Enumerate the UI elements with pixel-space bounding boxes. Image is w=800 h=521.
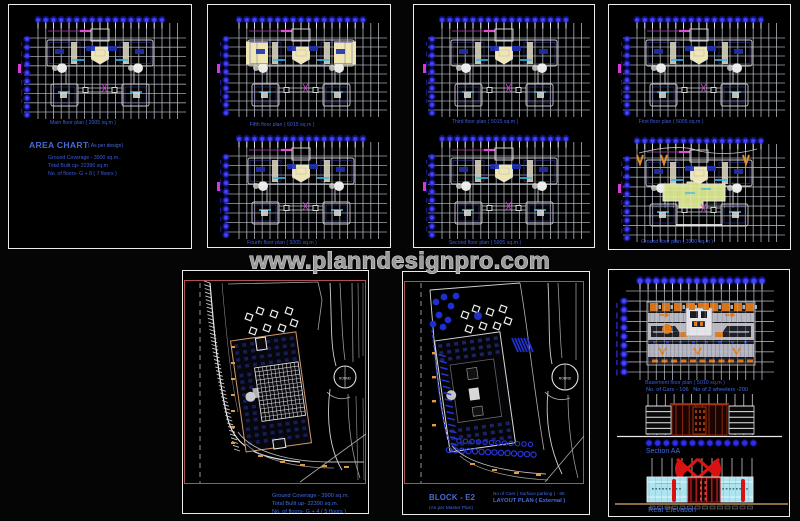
svg-text:Basement floor plan ( 5010 sq.: Basement floor plan ( 5010 sq.m ): [645, 380, 725, 386]
svg-text:( As per design): ( As per design): [88, 143, 123, 149]
svg-text:Main floor plan ( 2005 sq.m ): Main floor plan ( 2005 sq.m ): [50, 120, 116, 126]
svg-text:Second floor plan ( 5005 sq.m: Second floor plan ( 5005 sq.m ): [449, 240, 522, 246]
svg-text:AREA CHART: AREA CHART: [29, 140, 89, 150]
svg-text:ROUND: ROUND: [339, 377, 351, 381]
svg-text:(As per Master Plan): (As per Master Plan): [429, 505, 473, 511]
svg-text:Total Bulit up- 22390 sq.m.: Total Bulit up- 22390 sq.m.: [272, 501, 339, 507]
svg-text:Rear Elevation: Rear Elevation: [648, 505, 696, 514]
svg-text:ROUND: ROUND: [559, 377, 572, 381]
svg-text:LAYOUT PLAN ( External ): LAYOUT PLAN ( External ): [493, 498, 565, 504]
svg-text:www.planndesignpro.com: www.planndesignpro.com: [249, 248, 550, 274]
svg-text:Ground Coverage - 3900 sq.m.: Ground Coverage - 3900 sq.m.: [272, 493, 350, 499]
svg-text:No of Cars ( Surface parking ): No of Cars ( Surface parking ) - 85: [493, 491, 565, 496]
svg-text:No. of floors- G + 4 ( 5 floor: No. of floors- G + 4 ( 5 floors ): [272, 509, 346, 515]
svg-text:Fourth floor plan ( 5005 sq.m: Fourth floor plan ( 5005 sq.m ): [247, 240, 317, 246]
svg-text:Third floor plan ( 5015 sq.m ): Third floor plan ( 5015 sq.m ): [452, 119, 519, 125]
svg-text:Section AA: Section AA: [646, 448, 681, 455]
svg-text:First floor plan ( 5005 sq.m ): First floor plan ( 5005 sq.m ): [639, 119, 704, 125]
svg-text:Ground floor plan ( 3900 sq.m: Ground floor plan ( 3900 sq.m ): [641, 239, 713, 245]
svg-text:Ground Coverage - 3900 sq.m..: Ground Coverage - 3900 sq.m..: [48, 155, 121, 161]
svg-text:Total Bulit up- 22390 sq.m: Total Bulit up- 22390 sq.m: [48, 163, 108, 169]
svg-text:Fifth floor plan ( 5015 sq.m ): Fifth floor plan ( 5015 sq.m ): [250, 122, 315, 128]
svg-text:No. of Cars - 106 No of 2 wh: No. of Cars - 106 No of 2 wheelers -200: [646, 387, 748, 393]
svg-text:BLOCK - E2: BLOCK - E2: [429, 493, 476, 502]
svg-text:No. of floors- G + 8 ( 7 floor: No. of floors- G + 8 ( 7 floors ): [48, 171, 117, 177]
